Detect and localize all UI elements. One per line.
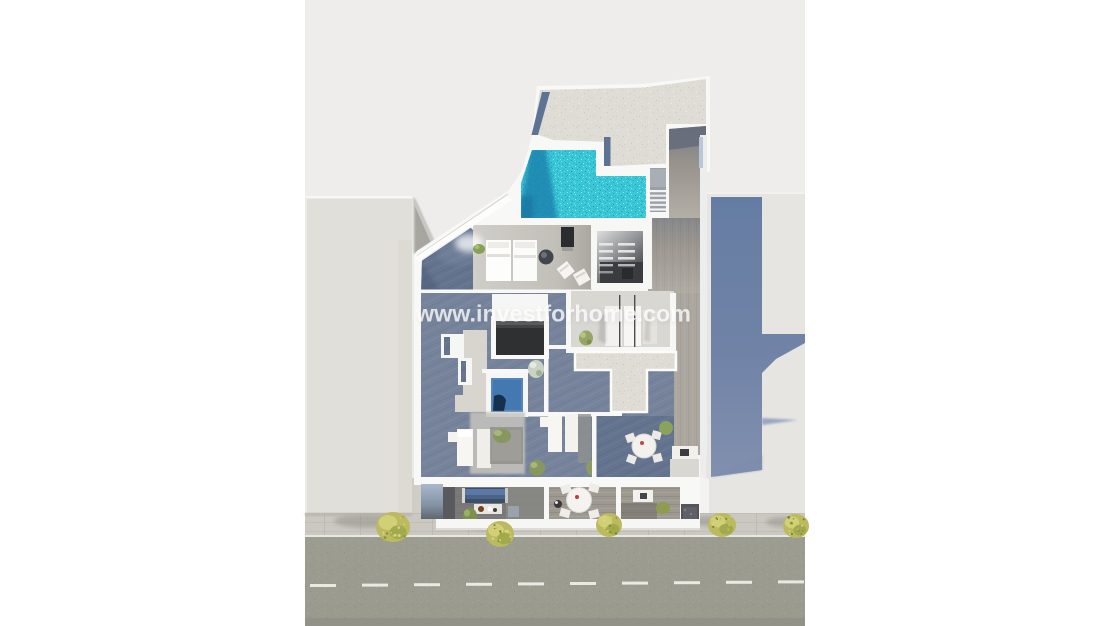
svg-text:www.investforhome.com: www.investforhome.com xyxy=(415,301,691,327)
